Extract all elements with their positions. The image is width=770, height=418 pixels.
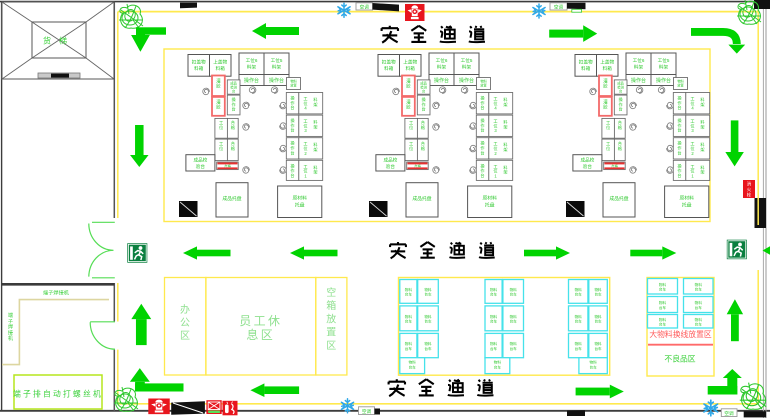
svg-text:物料: 物料 xyxy=(424,314,432,319)
svg-text:台车: 台车 xyxy=(659,305,667,310)
svg-text:消火栓: 消火栓 xyxy=(747,181,752,199)
svg-text:物料: 物料 xyxy=(695,317,703,322)
svg-text:息区: 息区 xyxy=(246,327,275,342)
svg-text:工位: 工位 xyxy=(219,141,223,151)
svg-text:料箱: 料箱 xyxy=(603,65,613,72)
svg-text:料架: 料架 xyxy=(634,64,644,71)
svg-text:工位5: 工位5 xyxy=(271,57,283,63)
svg-text:物料: 物料 xyxy=(575,314,583,319)
svg-text:托盘: 托盘 xyxy=(682,202,692,209)
svg-text:工位6: 工位6 xyxy=(246,57,258,63)
svg-text:成品托盘: 成品托盘 xyxy=(222,195,241,202)
svg-text:台车: 台车 xyxy=(424,346,432,351)
svg-text:工位: 工位 xyxy=(606,141,610,151)
svg-text:料架: 料架 xyxy=(437,64,447,71)
svg-text:台车: 台车 xyxy=(695,287,703,292)
svg-text:工位: 工位 xyxy=(606,120,610,130)
svg-text:原材料: 原材料 xyxy=(482,195,497,202)
svg-text:料箱: 料箱 xyxy=(384,65,394,72)
svg-text:料架: 料架 xyxy=(659,64,669,71)
svg-text:放置: 放置 xyxy=(480,83,486,88)
svg-text:端子排自动打螺丝机: 端子排自动打螺丝机 xyxy=(13,389,103,399)
svg-text:台车: 台车 xyxy=(490,292,498,297)
svg-text:物料: 物料 xyxy=(594,314,602,319)
svg-text:料箱: 料箱 xyxy=(194,65,204,72)
svg-text:空调: 空调 xyxy=(362,408,372,415)
svg-text:料箱: 料箱 xyxy=(406,65,416,72)
svg-text:办公区: 办公区 xyxy=(180,303,190,342)
svg-text:物料: 物料 xyxy=(424,287,432,292)
svg-text:台: 台 xyxy=(422,89,425,94)
svg-text:台: 台 xyxy=(232,89,235,94)
svg-text:灌胶: 灌胶 xyxy=(406,99,411,111)
svg-text:料架: 料架 xyxy=(462,64,472,71)
svg-text:空调: 空调 xyxy=(360,4,370,11)
svg-text:验台: 验台 xyxy=(386,163,396,170)
svg-text:台车: 台车 xyxy=(405,346,413,351)
svg-text:工位5: 工位5 xyxy=(461,57,473,63)
svg-text:台车: 台车 xyxy=(494,364,502,369)
svg-text:成品校: 成品校 xyxy=(194,157,208,164)
svg-text:操作台: 操作台 xyxy=(244,77,259,84)
svg-text:工位6: 工位6 xyxy=(633,57,645,63)
svg-text:台车: 台车 xyxy=(490,319,498,324)
svg-text:物料: 物料 xyxy=(575,341,583,346)
svg-text:成品托盘: 成品托盘 xyxy=(609,195,628,202)
svg-text:工位: 工位 xyxy=(409,141,413,151)
svg-text:物料: 物料 xyxy=(575,287,583,292)
svg-text:台车: 台车 xyxy=(594,346,602,351)
svg-text:上盖物: 上盖物 xyxy=(403,59,417,66)
svg-text:台车: 台车 xyxy=(575,346,583,351)
svg-text:灌胶: 灌胶 xyxy=(216,78,221,90)
svg-text:台车: 台车 xyxy=(510,292,518,297)
svg-text:台车: 台车 xyxy=(594,292,602,297)
svg-text:工位6: 工位6 xyxy=(436,57,448,63)
svg-text:端子焊接机: 端子焊接机 xyxy=(8,311,14,342)
svg-text:物料: 物料 xyxy=(494,360,502,365)
svg-text:物料: 物料 xyxy=(405,341,413,346)
svg-text:台车: 台车 xyxy=(659,322,667,327)
svg-text:物料: 物料 xyxy=(409,360,417,365)
svg-text:物料: 物料 xyxy=(510,287,518,292)
svg-text:灌胶: 灌胶 xyxy=(603,99,608,111)
svg-text:台车: 台车 xyxy=(575,319,583,324)
svg-text:料箱: 料箱 xyxy=(581,65,591,72)
svg-text:成品托盘: 成品托盘 xyxy=(412,195,431,202)
svg-text:料箱: 料箱 xyxy=(216,65,226,72)
svg-text:台车: 台车 xyxy=(594,319,602,324)
svg-text:物料: 物料 xyxy=(590,360,598,365)
svg-text:物料: 物料 xyxy=(659,300,667,305)
svg-text:物料: 物料 xyxy=(510,314,518,319)
svg-text:台车: 台车 xyxy=(695,322,703,327)
svg-text:台车: 台车 xyxy=(405,319,413,324)
svg-text:物料: 物料 xyxy=(695,300,703,305)
svg-text:物料: 物料 xyxy=(490,287,498,292)
svg-text:工位5: 工位5 xyxy=(658,57,670,63)
svg-text:空调: 空调 xyxy=(554,4,564,11)
svg-text:不良品区: 不良品区 xyxy=(664,354,695,364)
svg-text:操作台: 操作台 xyxy=(631,77,646,84)
svg-text:成品校: 成品校 xyxy=(581,157,595,164)
svg-text:灌胶: 灌胶 xyxy=(406,78,411,90)
svg-text:大物料换线放置区: 大物料换线放置区 xyxy=(649,329,712,339)
svg-text:放置: 放置 xyxy=(677,83,683,88)
svg-text:操作台: 操作台 xyxy=(269,77,284,84)
svg-text:操作台: 操作台 xyxy=(656,77,671,84)
svg-text:灌胶: 灌胶 xyxy=(603,78,608,90)
svg-text:物料: 物料 xyxy=(490,314,498,319)
svg-text:托盘: 托盘 xyxy=(295,202,305,209)
svg-text:物料: 物料 xyxy=(405,287,413,292)
svg-text:员工休: 员工休 xyxy=(239,314,282,328)
svg-text:操作台: 操作台 xyxy=(434,77,449,84)
svg-text:放置: 放置 xyxy=(290,83,296,88)
svg-text:物料: 物料 xyxy=(695,282,703,287)
svg-text:空调: 空调 xyxy=(724,410,734,417)
svg-text:料架: 料架 xyxy=(247,64,257,71)
svg-text:物料: 物料 xyxy=(510,341,518,346)
svg-text:物料: 物料 xyxy=(594,287,602,292)
svg-text:端子焊接机: 端子焊接机 xyxy=(43,289,70,297)
svg-text:物料: 物料 xyxy=(490,341,498,346)
svg-text:扣盖物: 扣盖物 xyxy=(579,59,593,66)
svg-text:物料: 物料 xyxy=(659,282,667,287)
svg-text:扣盖物: 扣盖物 xyxy=(382,59,396,66)
svg-text:工位: 工位 xyxy=(409,120,413,130)
svg-text:台车: 台车 xyxy=(510,346,518,351)
svg-text:台车: 台车 xyxy=(510,319,518,324)
svg-text:验台: 验台 xyxy=(196,163,206,170)
svg-text:成品校: 成品校 xyxy=(384,157,398,164)
svg-text:工位: 工位 xyxy=(219,120,223,130)
svg-text:货梯: 货梯 xyxy=(43,36,75,46)
svg-text:台车: 台车 xyxy=(424,292,432,297)
svg-text:物料: 物料 xyxy=(594,341,602,346)
svg-text:台车: 台车 xyxy=(490,346,498,351)
svg-text:空箱放置区: 空箱放置区 xyxy=(326,286,336,352)
svg-text:原材料: 原材料 xyxy=(292,195,307,202)
svg-text:台车: 台车 xyxy=(695,305,703,310)
svg-text:料架: 料架 xyxy=(272,64,282,71)
svg-text:灌胶: 灌胶 xyxy=(216,99,221,111)
svg-text:台车: 台车 xyxy=(575,292,583,297)
svg-text:台车: 台车 xyxy=(409,364,417,369)
svg-text:台车: 台车 xyxy=(590,364,598,369)
svg-text:验台: 验台 xyxy=(583,163,593,170)
svg-text:物料: 物料 xyxy=(405,314,413,319)
svg-text:物料: 物料 xyxy=(659,317,667,322)
svg-text:台: 台 xyxy=(619,89,622,94)
svg-text:操作台: 操作台 xyxy=(459,77,474,84)
svg-text:上盖物: 上盖物 xyxy=(600,59,614,66)
svg-text:台车: 台车 xyxy=(405,292,413,297)
svg-text:上盖物: 上盖物 xyxy=(213,59,227,66)
svg-text:扣盖物: 扣盖物 xyxy=(192,59,206,66)
svg-text:台车: 台车 xyxy=(424,319,432,324)
svg-text:台车: 台车 xyxy=(659,287,667,292)
svg-text:托盘: 托盘 xyxy=(485,202,495,209)
svg-text:原材料: 原材料 xyxy=(679,195,694,202)
svg-text:物料: 物料 xyxy=(424,341,432,346)
